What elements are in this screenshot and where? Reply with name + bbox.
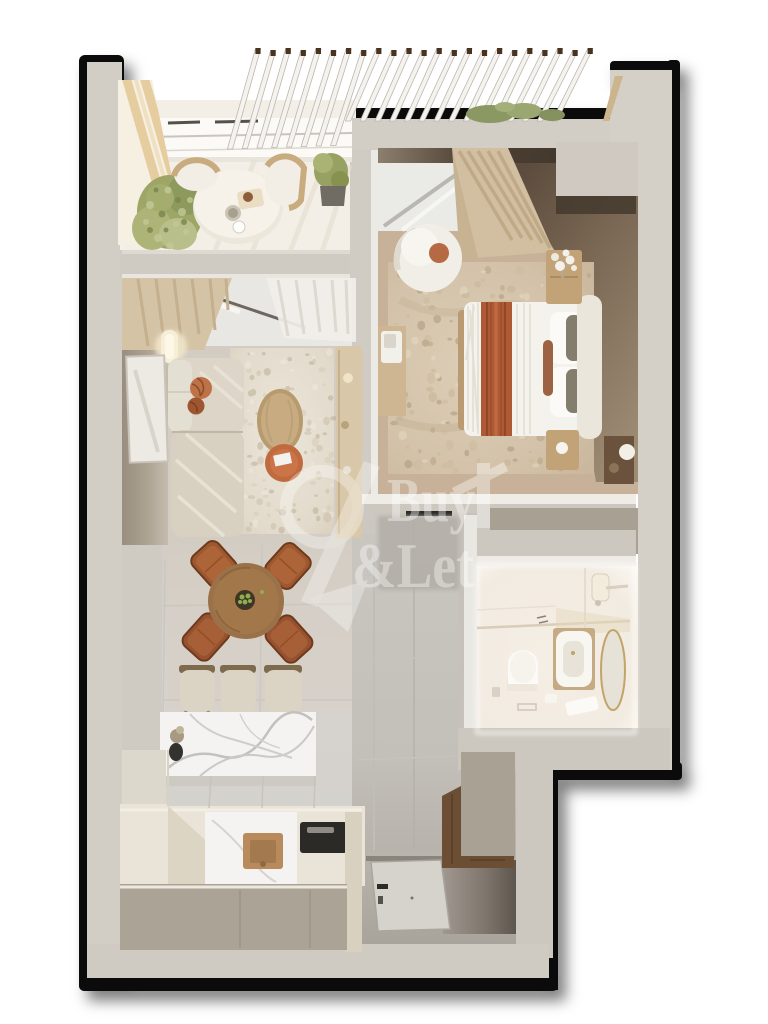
svg-text:&Let: &Let [352,530,475,601]
svg-text:Buy: Buy [387,467,475,535]
